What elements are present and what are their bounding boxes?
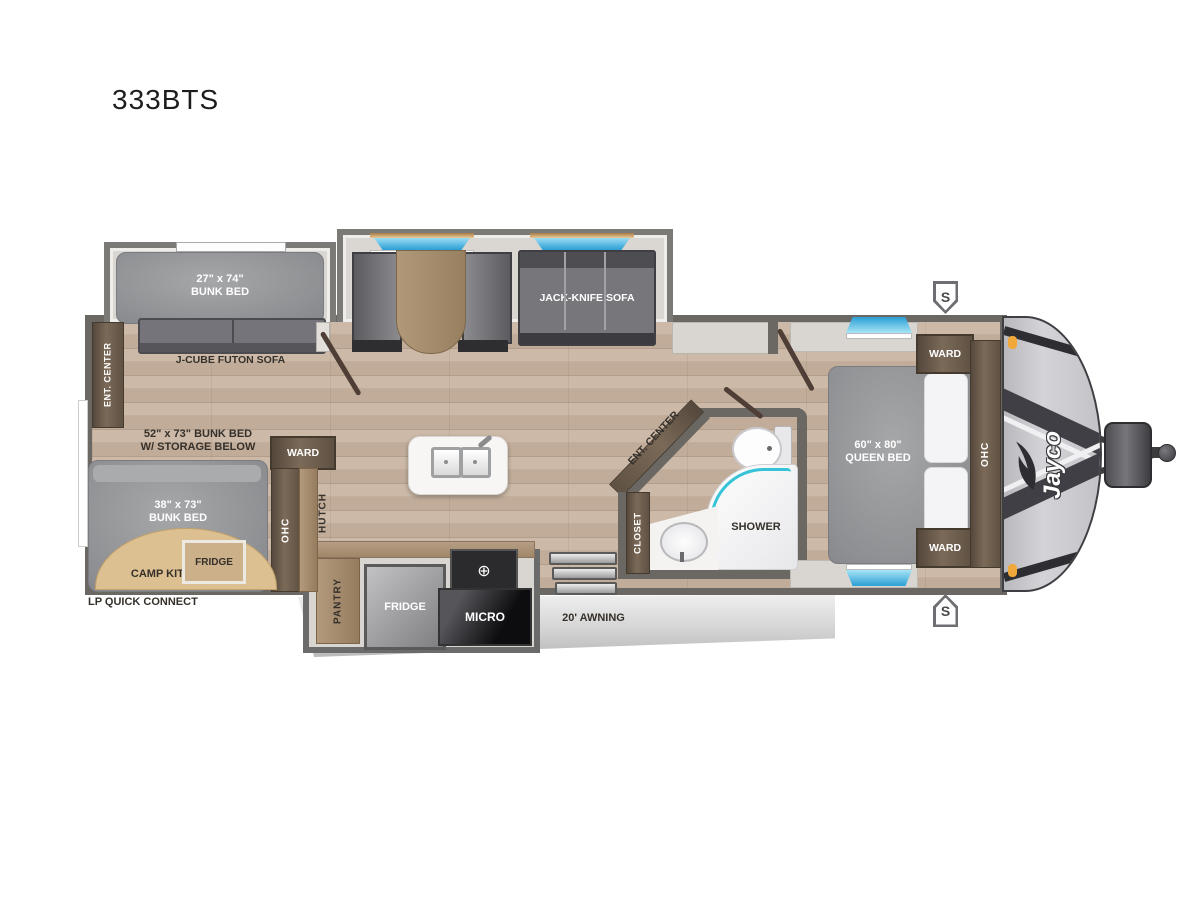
ward-bunkroom: WARD [270,436,336,470]
ohc-bedroom-label: OHC [971,341,1000,567]
pantry-label: PANTRY [317,559,359,643]
bedroom-window-icon [846,564,912,585]
bath-wall-right [797,408,807,579]
ward-bottom-label: WARD [929,542,961,555]
sofa-seam [604,252,606,330]
ohc-bedroom: OHC [970,340,1001,568]
hutch-label-wrap: HUTCH [316,478,330,548]
pillow [924,373,968,463]
toilet-flush [767,446,772,451]
bunk-38-label: 38" x 73" BUNK BED [89,499,267,525]
bunk-pillow [93,465,261,482]
futon-label: J-CUBE FUTON SOFA [148,354,313,367]
wall-stub [768,322,778,354]
window-sill [846,564,912,570]
ohc-bunkroom: OHC [271,468,301,592]
sofa-back [520,252,654,268]
vanity-faucet-icon [680,552,684,562]
refrigerator-label: FRIDGE [384,601,426,614]
jack-knife-sofa: JACK-KNIFE SOFA [518,250,656,346]
window-glass [846,570,912,586]
upper-cabinet-band [672,322,772,354]
window-glass [370,238,474,250]
window-glass [530,238,634,250]
cooktop-icon: ⊕ [450,549,518,593]
bunk-bed-27x74: 27" x 74" BUNK BED [116,252,324,324]
window-glass [846,317,912,333]
marker-light-icon [1008,336,1017,349]
cap-graphic-corner [1003,546,1102,582]
floorplan-title: 333BTS [112,84,219,116]
hitch-ball-icon [1158,444,1176,462]
sink-drain [444,460,448,464]
window-shade [370,233,474,238]
shower-glass-icon [710,468,791,563]
floorplan: 333BTS 20' AWNING 27" x 74" BUNK BED J-C… [0,0,1200,900]
hutch-label: HUTCH [316,478,330,548]
dinette-table [396,250,466,354]
speaker-badge-icon: S [933,281,958,314]
camp-fridge-label: FRIDGE [195,556,233,569]
burner-glyph: ⊕ [477,561,490,581]
ward-bedroom-bottom: WARD [916,528,974,568]
closet: CLOSET [626,492,650,574]
lp-quick-connect-label: LP QUICK CONNECT [88,596,288,609]
bunk-52-label: 52" x 73" BUNK BED W/ STORAGE BELOW [112,428,284,454]
microwave: MICRO [438,588,532,646]
dinette-bench-base [458,340,508,352]
refrigerator: FRIDGE [364,564,446,650]
brand-logo: Jayco [1008,395,1072,535]
ward-bedroom-top: WARD [916,334,974,374]
brand-logo-text: Jayco [1039,431,1067,499]
sink-drain [473,460,477,464]
bunk-bed-27x74-label: 27" x 74" BUNK BED [117,273,323,299]
rear-entertainment-center: ENT. CENTER [92,322,124,428]
marker-light-icon [1008,564,1017,577]
futon-sofa [138,318,326,354]
dinette-bench-base [352,340,402,352]
speaker-badge-letter: S [936,284,956,311]
rear-ent-center-label: ENT. CENTER [93,323,123,427]
bath-wall-bottom [626,570,807,579]
jack-knife-sofa-label: JACK-KNIFE SOFA [520,292,654,305]
closet-wall [618,492,626,579]
microwave-label: MICRO [465,611,505,624]
ohc-bunkroom-label: OHC [272,469,300,591]
ward-bunkroom-label: WARD [287,447,319,460]
cap-graphic-corner [1003,326,1102,362]
step [549,552,617,565]
vanity-sink-icon [660,522,708,562]
sofa-seam [564,252,566,330]
dinette-bench [352,252,402,344]
futon-base [140,343,324,352]
bedroom-window-icon [846,317,912,338]
propane-cover [1104,422,1152,488]
ward-top-label: WARD [929,348,961,361]
eagle-icon [1013,438,1039,492]
queen-bed-label: 60" x 80" QUEEN BED [831,439,925,465]
rear-wall-window-icon [78,400,88,547]
step [552,567,617,580]
bunk-slide-window-icon [176,242,286,252]
sofa-front-rail [520,333,654,344]
camp-kitchen-fridge: FRIDGE [182,540,246,584]
pantry: PANTRY [316,558,360,644]
window-sill [846,333,912,339]
awning-label: 20' AWNING [536,612,651,625]
speaker-badge-letter: S [936,598,956,625]
sink-icon [460,447,491,478]
dinette-bench [462,252,512,344]
kitchen-island [408,436,508,495]
step [555,582,617,595]
closet-label: CLOSET [627,493,649,573]
entry-steps [549,552,617,596]
sink-icon [431,447,462,478]
window-shade [530,233,634,238]
speaker-badge-icon: S [933,594,958,627]
